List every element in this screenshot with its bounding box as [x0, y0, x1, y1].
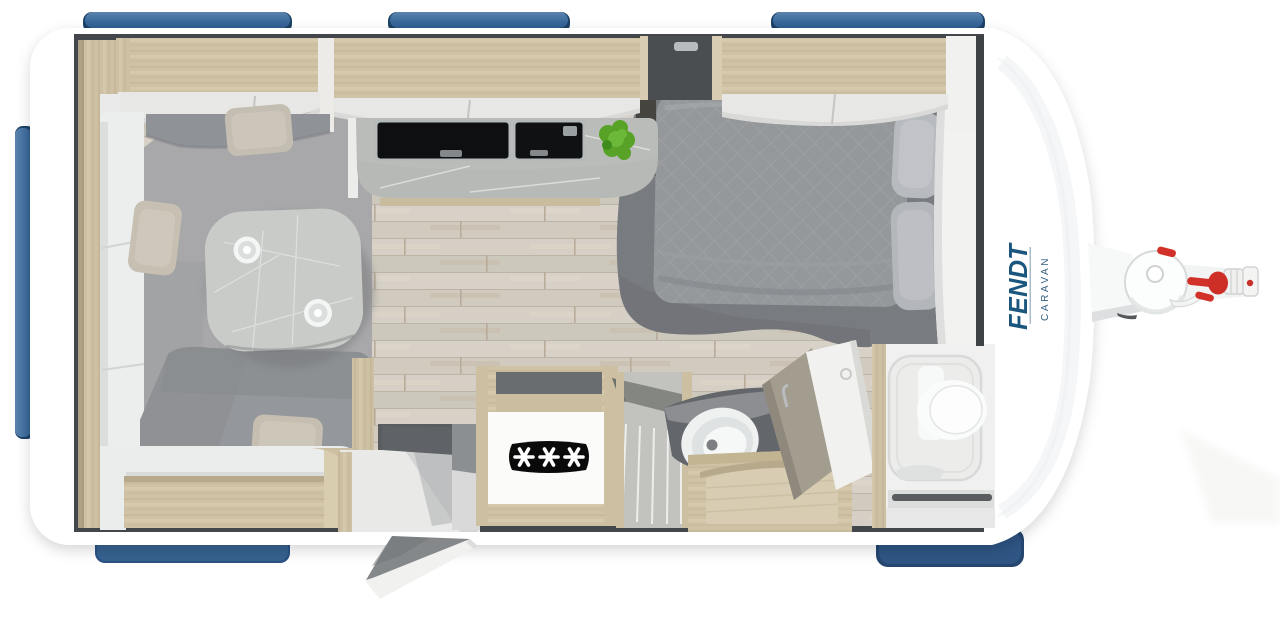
svg-text:CARAVAN: CARAVAN	[1040, 256, 1051, 321]
svg-text:FENDT: FENDT	[1005, 242, 1033, 330]
